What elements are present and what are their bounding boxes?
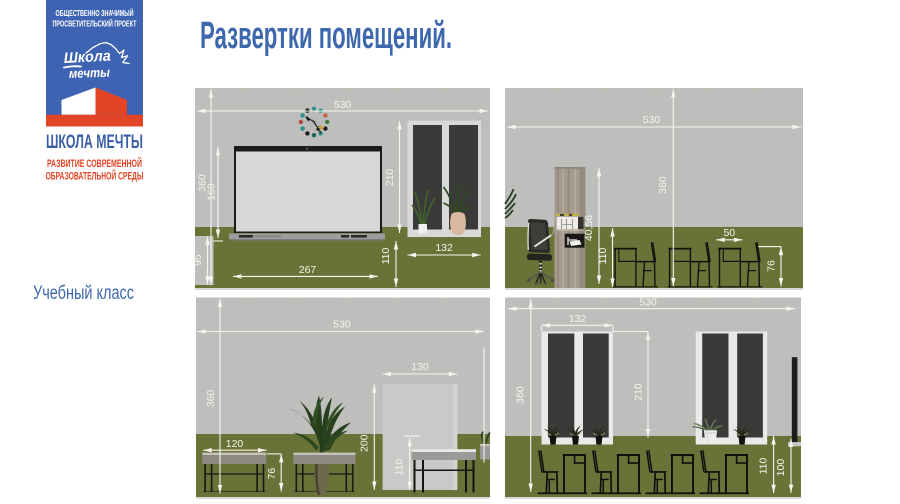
svg-text:132: 132 [569, 313, 587, 325]
svg-text:120: 120 [226, 438, 244, 450]
svg-text:50: 50 [723, 227, 735, 239]
svg-text:360: 360 [205, 390, 217, 408]
svg-text:Развертки помещений.: Развертки помещений. [200, 15, 452, 57]
svg-text:530: 530 [333, 319, 351, 331]
svg-text:ОБЩЕСТВЕННО ЗНАЧИМЫЙ: ОБЩЕСТВЕННО ЗНАЧИМЫЙ [56, 9, 134, 18]
svg-text:132: 132 [435, 242, 453, 254]
svg-text:ПРОСВЕТИТЕЛЬСКИЙ ПРОЕКТ: ПРОСВЕТИТЕЛЬСКИЙ ПРОЕКТ [53, 20, 137, 29]
svg-text:76: 76 [766, 260, 778, 272]
svg-text:110: 110 [758, 457, 770, 474]
svg-text:210: 210 [633, 383, 645, 401]
svg-text:530: 530 [639, 297, 657, 309]
svg-text:530: 530 [643, 114, 661, 126]
svg-text:40,56: 40,56 [583, 215, 595, 241]
svg-text:530: 530 [334, 99, 352, 111]
svg-text:110: 110 [597, 247, 609, 264]
svg-text:360: 360 [657, 176, 669, 194]
svg-text:267: 267 [299, 264, 317, 276]
svg-text:РАЗВИТИЕ СОВРЕМЕННОЙ: РАЗВИТИЕ СОВРЕМЕННОЙ [47, 157, 142, 170]
svg-text:ОБРАЗОВАТЕЛЬНОЙ СРЕДЫ: ОБРАЗОВАТЕЛЬНОЙ СРЕДЫ [46, 170, 144, 183]
svg-text:169: 169 [206, 183, 218, 201]
svg-text:110: 110 [394, 458, 406, 475]
svg-text:76: 76 [266, 468, 278, 480]
svg-text:200: 200 [359, 434, 371, 452]
svg-text:110: 110 [380, 247, 392, 264]
svg-text:ШКОЛА МЕЧТЫ: ШКОЛА МЕЧТЫ [46, 132, 143, 153]
svg-text:100: 100 [775, 459, 787, 477]
svg-text:360: 360 [515, 386, 527, 404]
svg-text:130: 130 [411, 361, 429, 373]
svg-text:210: 210 [384, 169, 396, 187]
svg-text:95: 95 [192, 254, 204, 266]
svg-text:Учебный класс: Учебный класс [33, 283, 134, 304]
